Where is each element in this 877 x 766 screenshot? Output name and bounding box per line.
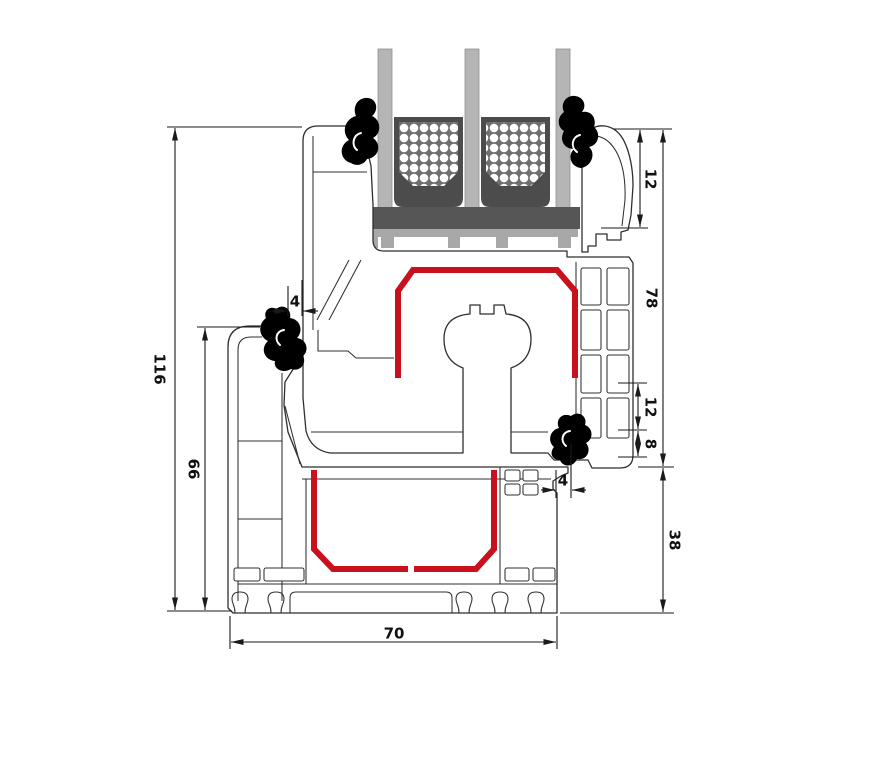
sash-small-chamber — [607, 268, 629, 305]
frame-small-chamber — [505, 470, 520, 481]
frame-base-chamber — [234, 568, 260, 581]
dim-label-total-height: 116 — [151, 353, 169, 384]
drawing-canvas: 116 66 4 12 78 12 8 4 38 70 — [0, 0, 877, 766]
support-leg — [558, 229, 571, 248]
support-leg — [496, 229, 508, 248]
glazing-setting-block — [370, 207, 580, 248]
sash-small-chamber — [581, 355, 601, 393]
support-strip — [371, 229, 578, 237]
spacer-dots-right — [486, 122, 545, 186]
frame-small-chamber — [505, 484, 520, 495]
spacer-dots-left — [399, 122, 458, 186]
dim-label-sash-height: 78 — [643, 288, 661, 309]
setting-block-bar — [370, 207, 580, 229]
sash-small-chamber — [581, 310, 601, 350]
gasket-sash-top — [342, 98, 380, 165]
support-leg — [448, 229, 460, 248]
dim-label-base-height: 38 — [666, 530, 684, 551]
dim-label-rebate-height: 12 — [642, 397, 660, 418]
sash-small-chamber — [581, 268, 601, 305]
dim-label-rebate-step: 8 — [642, 439, 660, 449]
sash-small-chamber — [607, 355, 629, 393]
dim-label-overlap-right: 4 — [558, 472, 568, 490]
glass-pane-middle — [465, 49, 479, 230]
dim-label-overlap-left: 4 — [290, 293, 300, 311]
frame-base-chamber — [264, 568, 304, 581]
sash-small-chamber — [607, 310, 629, 350]
frame-small-chamber — [523, 484, 538, 495]
frame-base-chamber — [505, 568, 529, 581]
sash-small-chamber — [607, 398, 629, 438]
window-profile-section-svg: 116 66 4 12 78 12 8 4 38 70 — [0, 0, 877, 766]
frame-small-chamber — [523, 470, 538, 481]
dim-label-frame-height: 66 — [185, 459, 203, 480]
glass-pane-outer — [378, 49, 392, 230]
dim-label-profile-depth: 70 — [384, 625, 405, 643]
support-leg — [381, 229, 394, 248]
dim-label-bead-height: 12 — [642, 169, 660, 190]
frame-base-chamber — [533, 568, 555, 581]
